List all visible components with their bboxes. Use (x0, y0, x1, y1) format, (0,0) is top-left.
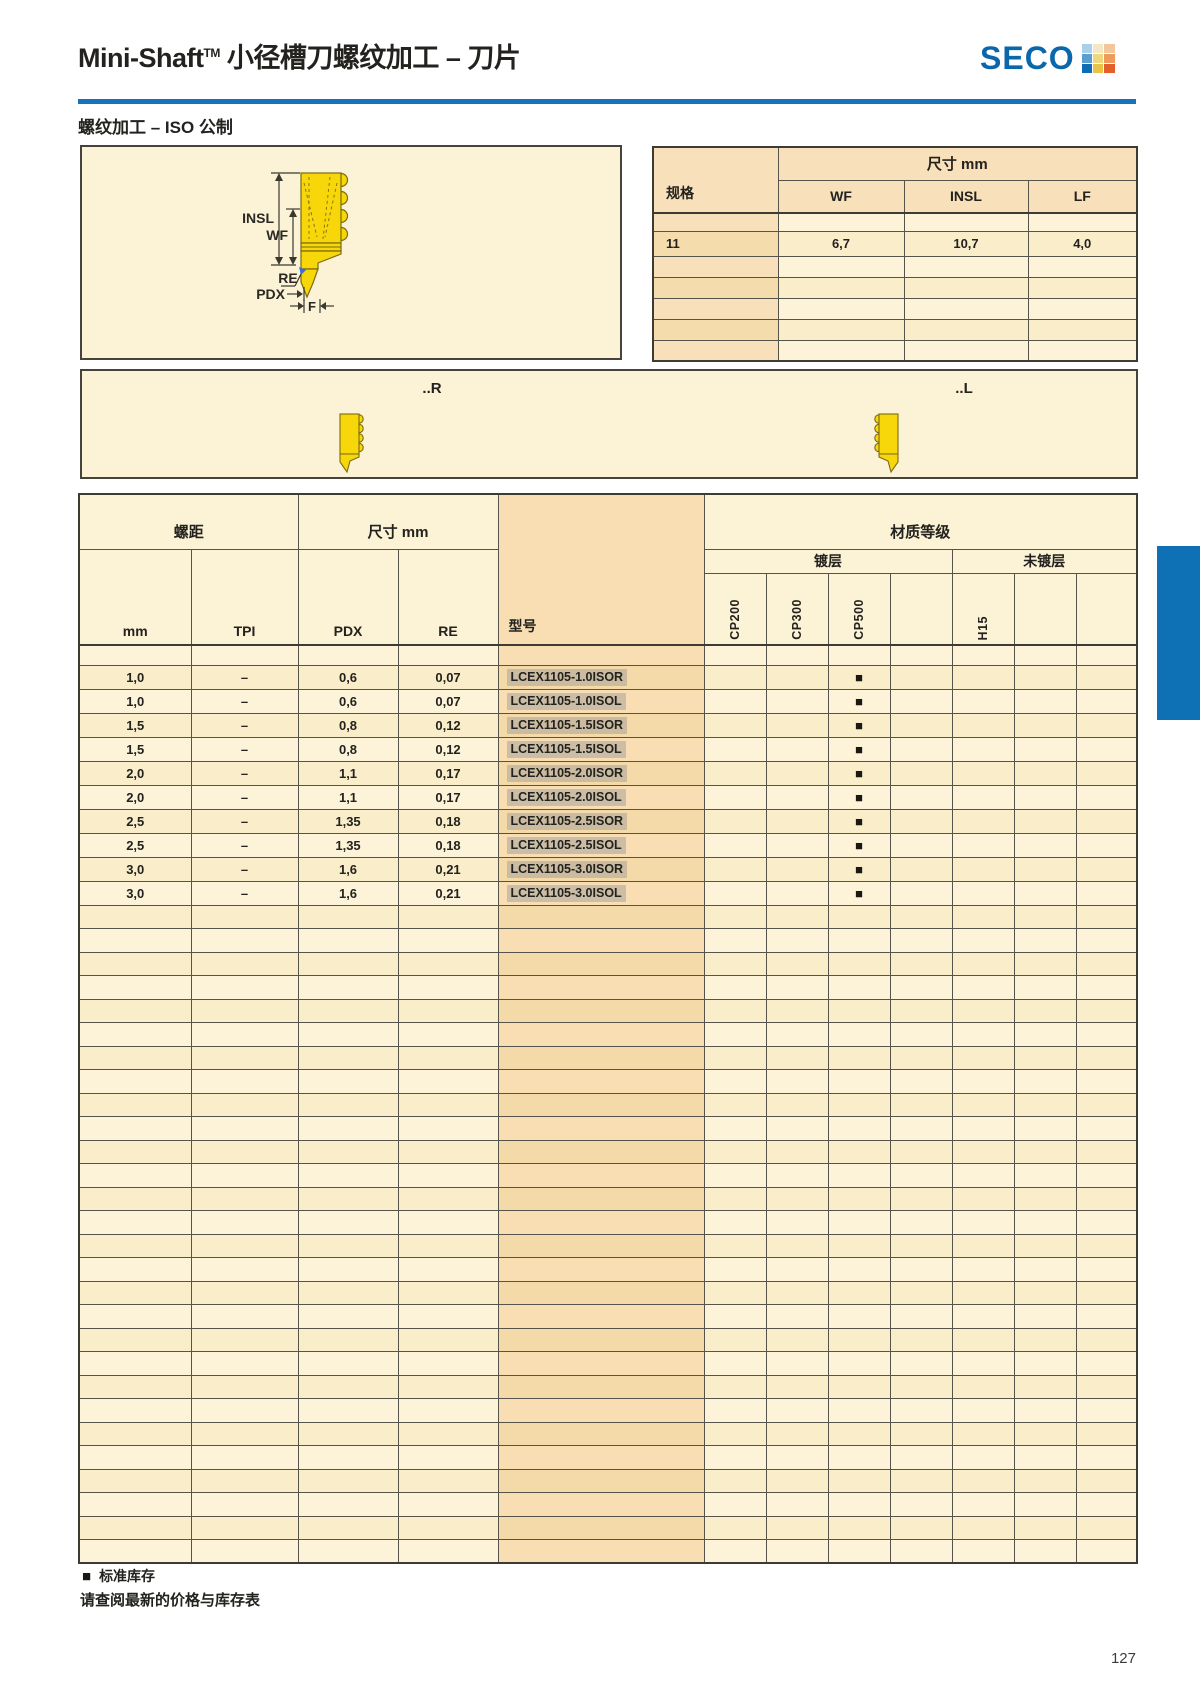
cell-tpi (191, 1493, 298, 1517)
grade-cell (1076, 1046, 1137, 1070)
grade-cell (890, 1211, 952, 1235)
grade-cell (952, 1140, 1014, 1164)
grade-cell (890, 1281, 952, 1305)
cell-mm: 1,0 (79, 665, 191, 689)
grade-cell (890, 1117, 952, 1141)
cell-tpi (191, 1516, 298, 1540)
orientation-panel: ..R ..L (80, 369, 1138, 479)
grade-cell (1076, 1446, 1137, 1470)
product-row: 2,5–1,350,18LCEX1105-2.5ISOL■ (79, 833, 1137, 857)
grade-cell (952, 1281, 1014, 1305)
spec-cell-designation: 11 (653, 231, 778, 256)
grade-cell (1076, 1399, 1137, 1423)
cell-re: 0,12 (398, 713, 498, 737)
grade-cell (704, 1211, 766, 1235)
empty-row (79, 1070, 1137, 1094)
grade-cell (952, 1117, 1014, 1141)
grade-cell (890, 1164, 952, 1188)
grade-cell (704, 999, 766, 1023)
empty-row (79, 1446, 1137, 1470)
grade-cell (1076, 1493, 1137, 1517)
grade-cell (1014, 1046, 1076, 1070)
grade-cell (704, 1375, 766, 1399)
empty-row (79, 1540, 1137, 1564)
grade-cell: ■ (828, 689, 890, 713)
grade-column-header-H15: H15 (952, 573, 1014, 645)
model-highlight: LCEX1105-2.5ISOL (507, 837, 626, 854)
page-title-brand: Mini-Shaft (78, 43, 203, 73)
grade-cell (828, 1211, 890, 1235)
empty-row (79, 1399, 1137, 1423)
cell-tpi: – (191, 689, 298, 713)
grade-cell (1076, 1352, 1137, 1376)
grade-cell (1076, 1070, 1137, 1094)
cell-mm (79, 1493, 191, 1517)
grade-cell (828, 1234, 890, 1258)
grade-cell (828, 1328, 890, 1352)
model-cell: LCEX1105-3.0ISOR (498, 857, 704, 881)
grade-cell (704, 1164, 766, 1188)
cell-pdx (298, 905, 398, 929)
grade-cell (1014, 1140, 1076, 1164)
grade-cell (766, 952, 828, 976)
cell-mm: 1,0 (79, 689, 191, 713)
grade-cell (1014, 1164, 1076, 1188)
model-cell (498, 1399, 704, 1423)
cell-mm (79, 1023, 191, 1047)
stock-legend-label: 标准库存 (99, 1566, 155, 1586)
model-cell: LCEX1105-1.5ISOL (498, 737, 704, 761)
cell-re (398, 905, 498, 929)
grade-cell (890, 999, 952, 1023)
grade-cell (1076, 1469, 1137, 1493)
grade-cell (1076, 1375, 1137, 1399)
model-cell (498, 1164, 704, 1188)
spec-cell-designation (653, 256, 778, 277)
grade-cell (704, 1046, 766, 1070)
model-highlight: LCEX1105-1.0ISOR (507, 669, 628, 686)
grade-cell (766, 929, 828, 953)
grade-cell (890, 1375, 952, 1399)
cell-tpi (191, 1164, 298, 1188)
cell-re: 0,07 (398, 689, 498, 713)
grade-cell (828, 1469, 890, 1493)
cell-re (398, 1117, 498, 1141)
cell-tpi: – (191, 665, 298, 689)
grade-cell: ■ (828, 809, 890, 833)
spec-cell-value: 6,7 (778, 231, 904, 256)
cell-re (398, 952, 498, 976)
grade-cell (828, 929, 890, 953)
cell-tpi (191, 1234, 298, 1258)
grade-cell (704, 713, 766, 737)
grade-cell (1014, 999, 1076, 1023)
grade-cell (766, 809, 828, 833)
grade-cell (890, 1234, 952, 1258)
model-cell (498, 929, 704, 953)
grade-cell (952, 1469, 1014, 1493)
column-header-re: RE (398, 549, 498, 645)
grade-cell (890, 905, 952, 929)
spec-empty-row (653, 213, 1137, 231)
grade-cell (890, 1328, 952, 1352)
cell-tpi: – (191, 833, 298, 857)
grade-cell (890, 645, 952, 665)
grade-cell (1076, 952, 1137, 976)
grade-cell (952, 905, 1014, 929)
grade-cell (952, 1422, 1014, 1446)
grade-cell (952, 1258, 1014, 1282)
grade-cell (890, 785, 952, 809)
grade-cell (890, 1493, 952, 1517)
grade-cell (1014, 1328, 1076, 1352)
cell-mm (79, 1305, 191, 1329)
grade-cell (1076, 881, 1137, 905)
product-row: 1,5–0,80,12LCEX1105-1.5ISOR■ (79, 713, 1137, 737)
grade-cell (1014, 1258, 1076, 1282)
cell-re: 0,17 (398, 761, 498, 785)
cell-tpi (191, 976, 298, 1000)
cell-tpi: – (191, 857, 298, 881)
cell-re (398, 1023, 498, 1047)
grade-cell (1014, 976, 1076, 1000)
cell-re (398, 1493, 498, 1517)
product-row: 1,0–0,60,07LCEX1105-1.0ISOR■ (79, 665, 1137, 689)
cell-mm (79, 929, 191, 953)
grade-cell (704, 1352, 766, 1376)
grade-cell (766, 1305, 828, 1329)
grade-cell (1076, 1117, 1137, 1141)
grade-cell (766, 1140, 828, 1164)
cell-tpi: – (191, 737, 298, 761)
cell-tpi (191, 905, 298, 929)
grade-cell (766, 976, 828, 1000)
empty-row (79, 1211, 1137, 1235)
cell-tpi (191, 1399, 298, 1423)
grade-cell (766, 1375, 828, 1399)
empty-row (79, 1023, 1137, 1047)
cell-tpi (191, 1211, 298, 1235)
cell-mm: 3,0 (79, 857, 191, 881)
grade-cell (704, 1446, 766, 1470)
grade-cell (1076, 976, 1137, 1000)
grade-cell (766, 665, 828, 689)
cell-tpi (191, 1305, 298, 1329)
grade-cell (1076, 1187, 1137, 1211)
grade-cell (1014, 1375, 1076, 1399)
grade-cell (1014, 1023, 1076, 1047)
grade-cell (1014, 737, 1076, 761)
grade-cell (952, 976, 1014, 1000)
spec-cell-value (778, 256, 904, 277)
grade-cell (766, 737, 828, 761)
cell-mm (79, 1140, 191, 1164)
grade-cell (1014, 1422, 1076, 1446)
model-cell (498, 1540, 704, 1564)
grade-cell (828, 1446, 890, 1470)
spec-cell-value (778, 340, 904, 361)
model-cell (498, 1046, 704, 1070)
model-cell (498, 1493, 704, 1517)
grade-cell (1014, 645, 1076, 665)
grade-cell: ■ (828, 857, 890, 881)
model-cell (498, 1187, 704, 1211)
model-cell (498, 1305, 704, 1329)
spec-col-header-wf: WF (778, 180, 904, 213)
cell-tpi (191, 1140, 298, 1164)
column-header-pdx: PDX (298, 549, 398, 645)
grade-cell (1076, 1258, 1137, 1282)
grade-cell (952, 1328, 1014, 1352)
grade-cell (704, 1093, 766, 1117)
orientation-label-left: ..L (942, 380, 986, 397)
grade-cell (1076, 905, 1137, 929)
dim-label-wf: WF (266, 227, 288, 243)
grade-cell (766, 713, 828, 737)
grade-cell (828, 1540, 890, 1564)
footer-note: 请查阅最新的价格与库存表 (80, 1589, 260, 1610)
grade-cell (828, 952, 890, 976)
cell-re (398, 1046, 498, 1070)
cell-pdx (298, 929, 398, 953)
cell-tpi (191, 1328, 298, 1352)
cell-tpi (191, 1422, 298, 1446)
cell-tpi (191, 645, 298, 665)
spec-row: 116,710,74,0 (653, 231, 1137, 256)
grade-cell (766, 1493, 828, 1517)
product-row: 2,5–1,350,18LCEX1105-2.5ISOR■ (79, 809, 1137, 833)
grade-cell (890, 976, 952, 1000)
grade-cell (704, 1469, 766, 1493)
cell-tpi: – (191, 809, 298, 833)
cell-tpi (191, 1258, 298, 1282)
rotated-grade-label: CP500 (852, 599, 866, 640)
model-cell (498, 1093, 704, 1117)
cell-tpi (191, 1375, 298, 1399)
spec-empty-row (653, 340, 1137, 361)
grade-cell (890, 1258, 952, 1282)
model-cell: LCEX1105-2.5ISOR (498, 809, 704, 833)
model-cell (498, 1375, 704, 1399)
grade-cell (952, 1516, 1014, 1540)
cell-re: 0,07 (398, 665, 498, 689)
cell-pdx (298, 1258, 398, 1282)
grade-cell (828, 1023, 890, 1047)
cell-pdx: 1,1 (298, 785, 398, 809)
cell-pdx (298, 1446, 398, 1470)
stock-mark: ■ (855, 670, 863, 685)
cell-mm: 1,5 (79, 713, 191, 737)
section-tab (1157, 546, 1200, 720)
cell-re (398, 1281, 498, 1305)
stock-mark: ■ (855, 694, 863, 709)
cell-mm (79, 999, 191, 1023)
grade-column-header-blank-3 (890, 573, 952, 645)
cell-re (398, 1187, 498, 1211)
grade-cell (766, 1117, 828, 1141)
cell-mm (79, 1117, 191, 1141)
seco-logo-mark-icon (1082, 44, 1115, 73)
grade-cell (1076, 1164, 1137, 1188)
grade-cell (766, 1070, 828, 1094)
grade-column-header-blank-5 (1014, 573, 1076, 645)
spec-cell-value (1028, 277, 1137, 298)
grade-column-header-CP300: CP300 (766, 573, 828, 645)
cell-tpi (191, 1187, 298, 1211)
cell-pdx (298, 1399, 398, 1423)
grade-cell (1014, 1493, 1076, 1517)
grade-cell (1014, 1469, 1076, 1493)
grade-cell (1014, 905, 1076, 929)
cell-mm: 3,0 (79, 881, 191, 905)
grade-cell (766, 1258, 828, 1282)
grade-cell (1014, 761, 1076, 785)
grade-cell (828, 1070, 890, 1094)
model-cell (498, 905, 704, 929)
empty-row (79, 1516, 1137, 1540)
grade-cell (1014, 1305, 1076, 1329)
empty-row (79, 1469, 1137, 1493)
cell-re: 0,17 (398, 785, 498, 809)
grade-cell (1014, 689, 1076, 713)
spec-cell-value (904, 256, 1028, 277)
header-divider (78, 99, 1136, 104)
cell-re (398, 1422, 498, 1446)
grade-cell (704, 645, 766, 665)
grade-cell (890, 833, 952, 857)
grade-cell (1076, 1211, 1137, 1235)
grade-cell (1076, 857, 1137, 881)
grade-cell (704, 737, 766, 761)
grade-cell (952, 1399, 1014, 1423)
grade-cell (704, 1281, 766, 1305)
product-row: 2,0–1,10,17LCEX1105-2.0ISOL■ (79, 785, 1137, 809)
grade-cell (1014, 1093, 1076, 1117)
cell-tpi (191, 1446, 298, 1470)
cell-pdx (298, 1281, 398, 1305)
cell-tpi: – (191, 785, 298, 809)
grade-cell (890, 1023, 952, 1047)
coated-group-header: 镀层 (704, 549, 952, 573)
grade-cell (704, 952, 766, 976)
dim-group-header: 尺寸 mm (298, 494, 498, 549)
grade-cell (766, 785, 828, 809)
grade-cell: ■ (828, 785, 890, 809)
cell-pdx (298, 1469, 398, 1493)
model-cell (498, 1117, 704, 1141)
grade-cell: ■ (828, 761, 890, 785)
grade-cell (1076, 1516, 1137, 1540)
grade-cell (1014, 809, 1076, 833)
spec-cell-designation (653, 277, 778, 298)
cell-pdx (298, 1352, 398, 1376)
pitch-group-header: 螺距 (79, 494, 298, 549)
grade-cell (1014, 1117, 1076, 1141)
grade-cell (704, 1258, 766, 1282)
cell-re (398, 1211, 498, 1235)
cell-pdx (298, 1516, 398, 1540)
grade-cell (1014, 1187, 1076, 1211)
cell-pdx: 0,8 (298, 713, 398, 737)
spec-cell-value: 4,0 (1028, 231, 1137, 256)
cell-pdx (298, 1140, 398, 1164)
cell-mm (79, 1399, 191, 1423)
empty-row (79, 1422, 1137, 1446)
grade-cell (1014, 857, 1076, 881)
cell-mm (79, 1540, 191, 1564)
grade-cell (1076, 1234, 1137, 1258)
grade-cell (1076, 1093, 1137, 1117)
model-cell (498, 1023, 704, 1047)
cell-mm (79, 952, 191, 976)
grade-cell (766, 1023, 828, 1047)
grade-cell (890, 713, 952, 737)
model-cell: LCEX1105-1.0ISOR (498, 665, 704, 689)
grade-cell (766, 1164, 828, 1188)
grade-cell (828, 1305, 890, 1329)
grade-cell (704, 881, 766, 905)
model-cell (498, 645, 704, 665)
grade-cell (766, 857, 828, 881)
model-highlight: LCEX1105-3.0ISOR (507, 861, 628, 878)
grade-cell (1014, 1070, 1076, 1094)
stock-mark: ■ (855, 862, 863, 877)
model-cell: LCEX1105-3.0ISOL (498, 881, 704, 905)
cell-tpi (191, 999, 298, 1023)
spec-dim-group-header: 尺寸 mm (778, 147, 1137, 180)
cell-mm: 2,0 (79, 761, 191, 785)
trademark-symbol: TM (203, 46, 219, 60)
orientation-label-right: ..R (410, 380, 454, 397)
grade-cell (766, 999, 828, 1023)
cell-mm (79, 1234, 191, 1258)
spec-empty-row (653, 256, 1137, 277)
grade-cell (704, 665, 766, 689)
cell-pdx (298, 1211, 398, 1235)
cell-mm (79, 1187, 191, 1211)
grade-cell (704, 1187, 766, 1211)
model-highlight: LCEX1105-2.5ISOR (507, 813, 628, 830)
thread-insert-icon-right (339, 413, 369, 475)
grade-cell (952, 1540, 1014, 1564)
grade-cell (890, 1140, 952, 1164)
grade-cell (1014, 1399, 1076, 1423)
cell-pdx: 0,6 (298, 665, 398, 689)
product-row: 3,0–1,60,21LCEX1105-3.0ISOL■ (79, 881, 1137, 905)
spec-cell-value: 10,7 (904, 231, 1028, 256)
model-cell (498, 952, 704, 976)
spec-cell-designation (653, 213, 778, 231)
grade-cell (828, 1046, 890, 1070)
grade-cell (704, 976, 766, 1000)
cell-re (398, 1375, 498, 1399)
grade-cell (952, 1446, 1014, 1470)
spec-cell-value (778, 213, 904, 231)
grade-cell (1014, 1516, 1076, 1540)
empty-row (79, 999, 1137, 1023)
grade-cell (1076, 809, 1137, 833)
cell-re: 0,21 (398, 857, 498, 881)
grade-cell (1014, 1446, 1076, 1470)
dim-label-pdx: PDX (256, 286, 285, 302)
grade-cell (704, 1023, 766, 1047)
cell-mm (79, 645, 191, 665)
cell-pdx: 1,6 (298, 881, 398, 905)
grade-cell (890, 689, 952, 713)
grade-cell (952, 929, 1014, 953)
cell-pdx (298, 1023, 398, 1047)
cell-pdx: 1,1 (298, 761, 398, 785)
